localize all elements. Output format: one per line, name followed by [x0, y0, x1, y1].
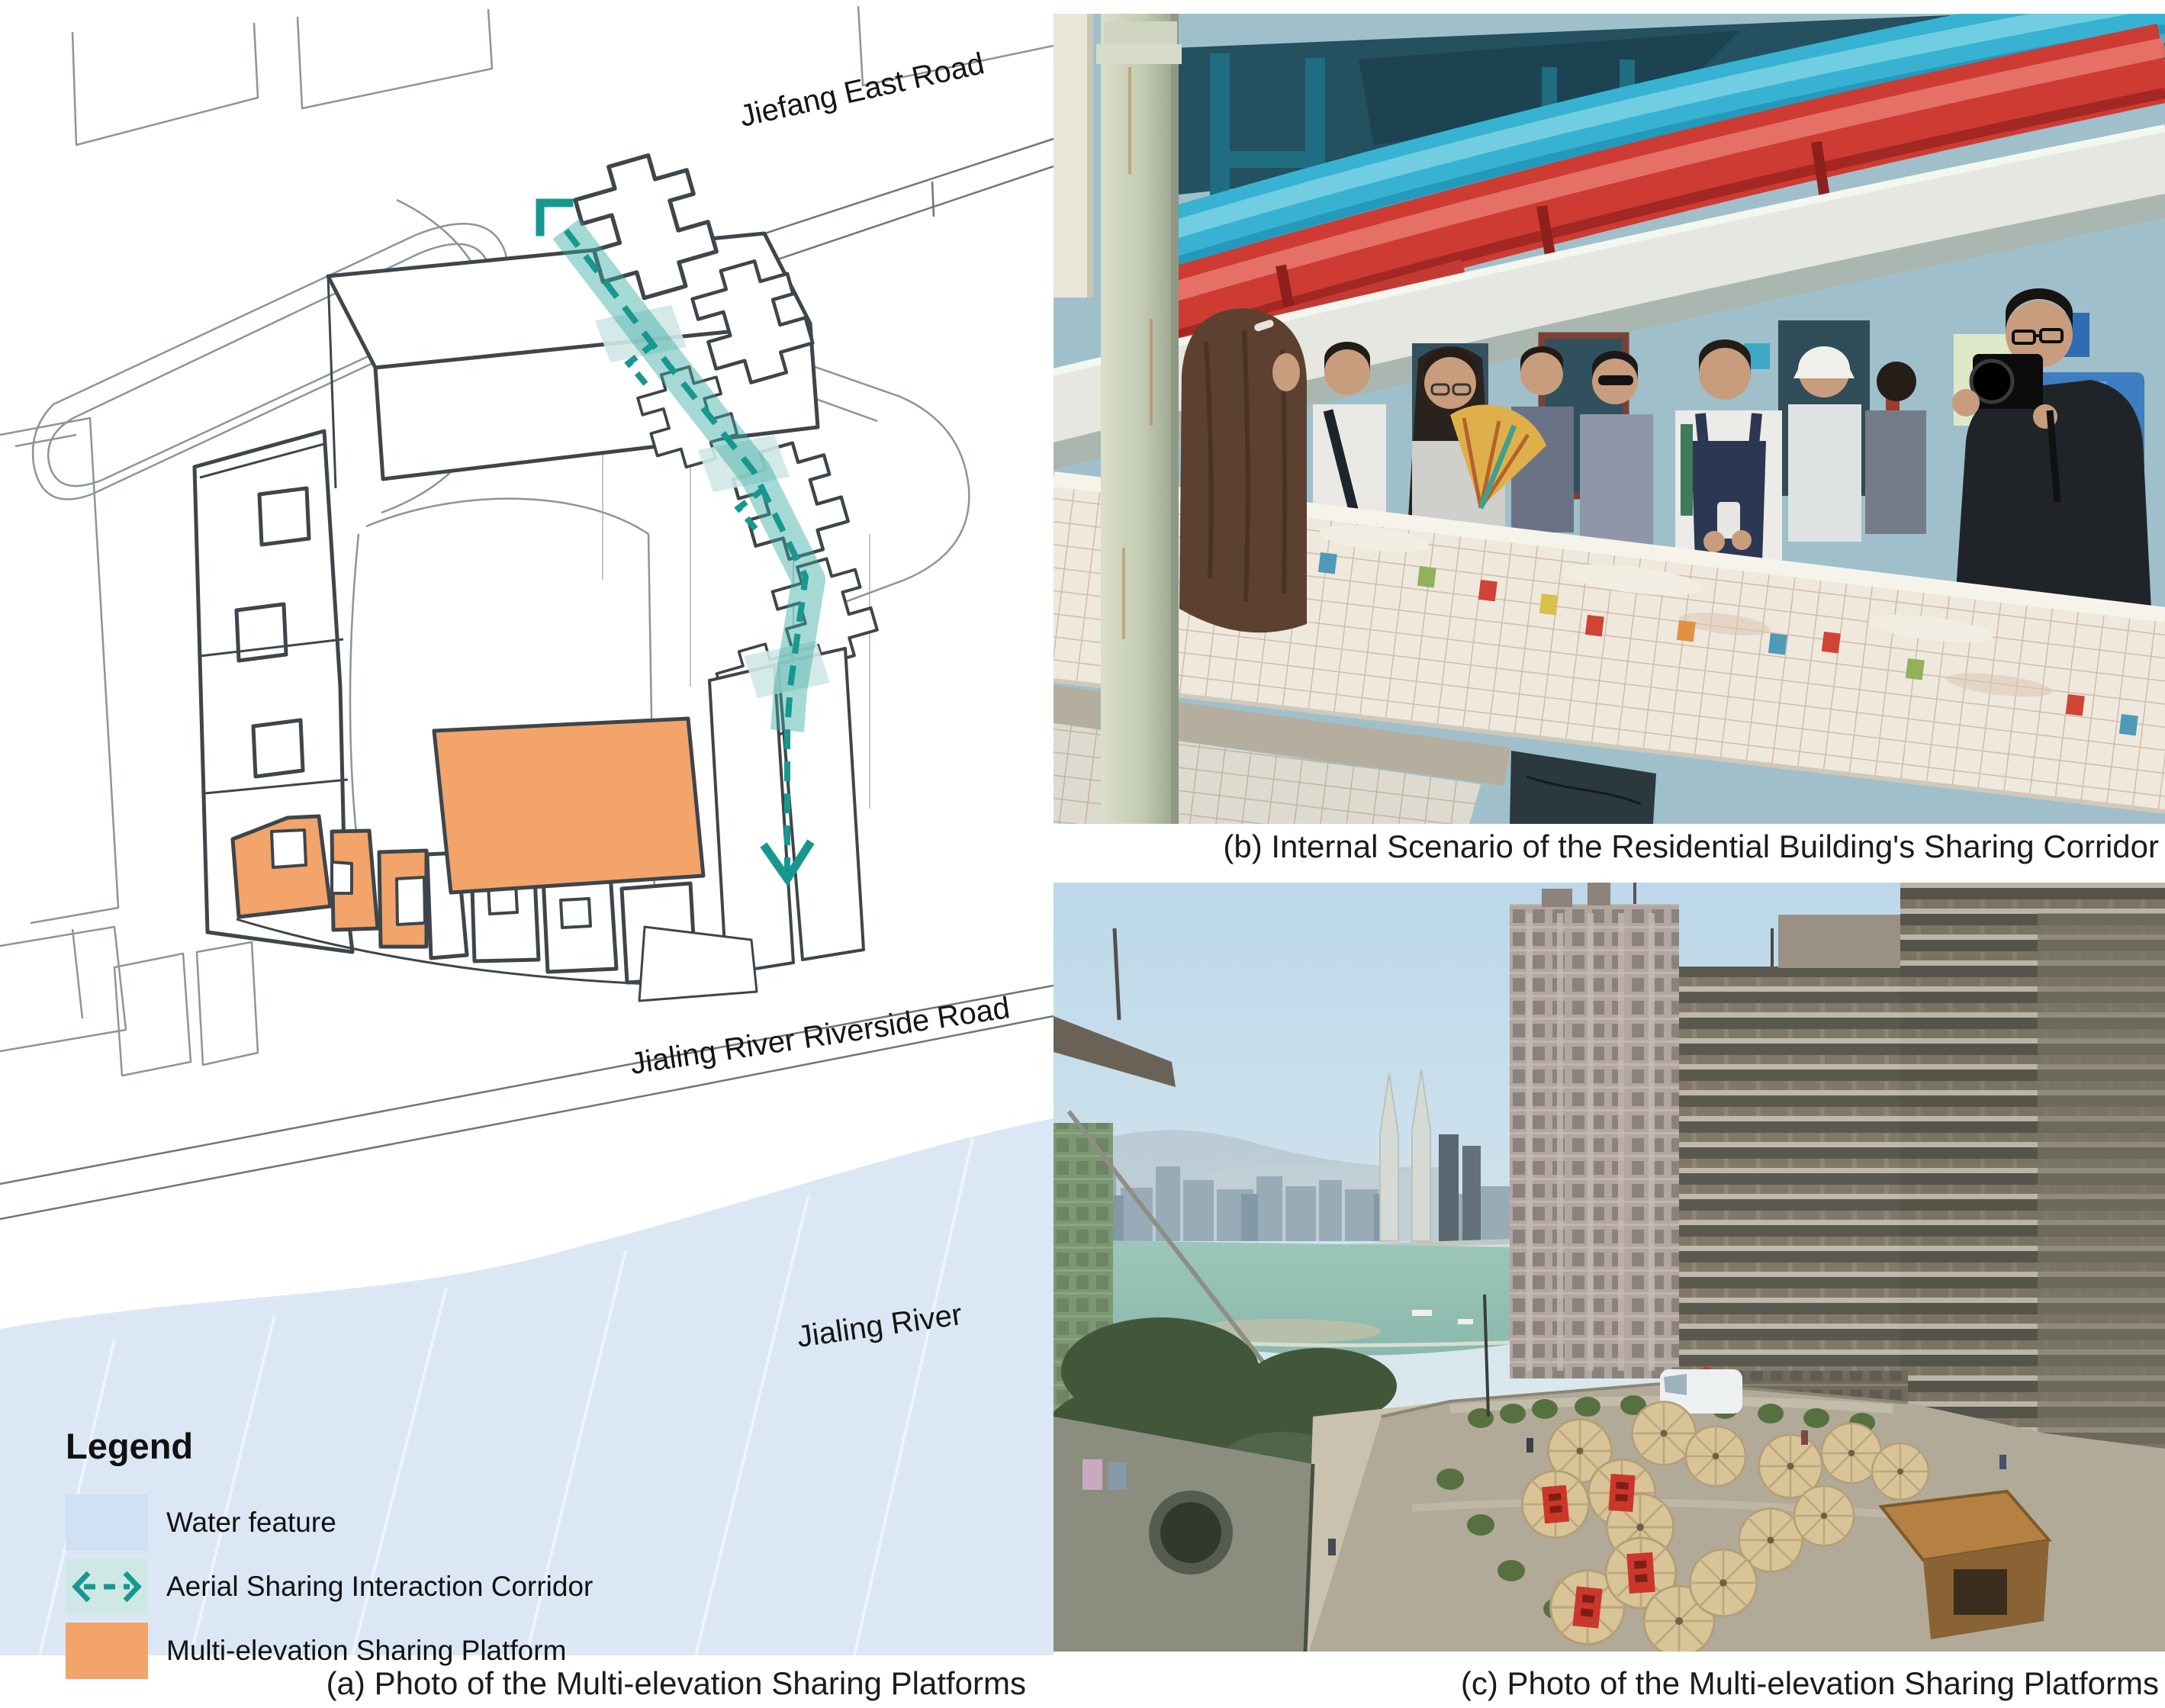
panel-c-photo	[1054, 883, 2165, 1652]
water-feature-swatch	[66, 1494, 148, 1551]
legend-item-water: Water feature	[66, 1494, 593, 1551]
legend-item-label: Aerial Sharing Interaction Corridor	[166, 1571, 593, 1603]
photo-multi-elevation-platforms	[1054, 883, 2165, 1652]
legend-title: Legend	[66, 1425, 593, 1467]
panel-a-map: Jiefang East Road Jialing River Riversid…	[0, 0, 1054, 1655]
panel-b-photo	[1054, 14, 2165, 824]
photo-sharing-corridor-interior	[1054, 14, 2165, 824]
map-legend: Legend Water feature Aerial Sharing Inte…	[66, 1425, 593, 1687]
legend-item-label: Water feature	[166, 1507, 336, 1539]
foreground-visitor-hair	[1179, 308, 1307, 632]
caption-b: (b) Internal Scenario of the Residential…	[1054, 828, 2159, 865]
figure-root: Jiefang East Road Jialing River Riversid…	[0, 0, 2165, 1708]
pale-green-column	[1101, 14, 1177, 824]
dashed-arrow-icon	[66, 1558, 148, 1615]
aerial-corridor-swatch	[66, 1558, 148, 1615]
caption-c: (c) Photo of the Multi-elevation Sharing…	[1054, 1665, 2159, 1702]
caption-a: (a) Photo of the Multi-elevation Sharing…	[0, 1665, 1026, 1702]
site-axonometric-map	[0, 0, 1054, 1655]
legend-item-label: Multi-elevation Sharing Platform	[166, 1635, 566, 1667]
legend-item-corridor: Aerial Sharing Interaction Corridor	[66, 1558, 593, 1615]
